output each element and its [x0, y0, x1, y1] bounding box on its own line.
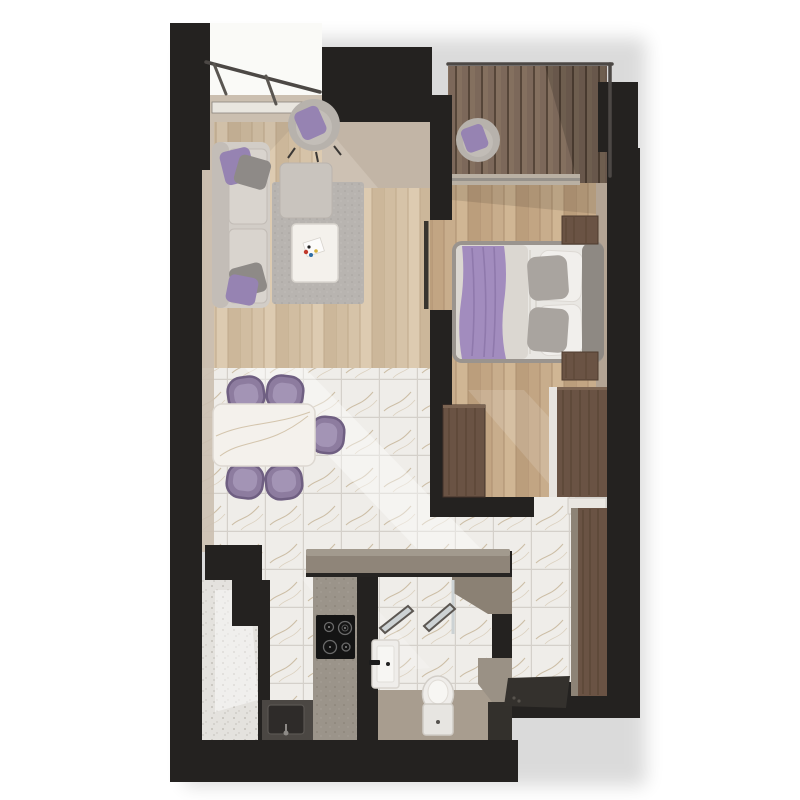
entrance-mat	[504, 676, 570, 708]
wall-bedroom-south	[430, 497, 534, 517]
wall-right	[607, 148, 640, 718]
bedroom-door-threshold	[430, 220, 452, 310]
coffee-table	[292, 224, 338, 282]
balcony-door-glass-right	[452, 178, 580, 181]
wall-bath-south	[357, 740, 512, 782]
shower-floor	[488, 702, 512, 740]
bedroom-cabinet	[443, 405, 485, 497]
sofa-pillow-purple	[225, 273, 260, 306]
floor-plan-stage	[0, 0, 800, 800]
hall-wardrobe	[571, 508, 607, 696]
wall-left	[170, 170, 202, 782]
balcony-armchair	[456, 118, 500, 162]
bed-throw-purple	[459, 246, 506, 359]
basin-faucet	[369, 660, 380, 665]
toilet	[423, 676, 454, 735]
ottoman	[280, 163, 332, 218]
bed-pillow-gray	[527, 307, 570, 354]
headboard	[582, 243, 604, 361]
wall-living-bedroom-upper	[430, 95, 452, 220]
flush-button	[436, 720, 440, 724]
sofa	[212, 142, 272, 308]
wall-balcony-stub	[205, 545, 262, 580]
bedroom-door-leaf-open	[424, 221, 429, 309]
dining-table	[213, 404, 315, 466]
peninsula-counter	[306, 549, 510, 577]
bed	[452, 241, 604, 363]
wall-top-left-corner	[170, 23, 210, 170]
balcony-top-left-floor	[208, 23, 322, 95]
nightstand-north	[562, 216, 598, 244]
wall-top-middle	[322, 47, 432, 122]
nightstand-south	[562, 352, 598, 380]
toilet-tank	[423, 704, 453, 735]
washbasin	[369, 640, 399, 688]
cooktop	[316, 615, 355, 659]
bed-pillow-gray	[527, 255, 570, 302]
floor-plan-render	[0, 0, 800, 800]
basin-drain	[386, 662, 390, 666]
wall-balcony-kitchen-a	[232, 580, 270, 626]
wall-balcony-corner	[598, 82, 638, 152]
bedroom-wardrobe	[549, 387, 607, 497]
kitchen-entry-floor	[262, 552, 308, 577]
kitchen-sink-counter	[262, 700, 313, 740]
